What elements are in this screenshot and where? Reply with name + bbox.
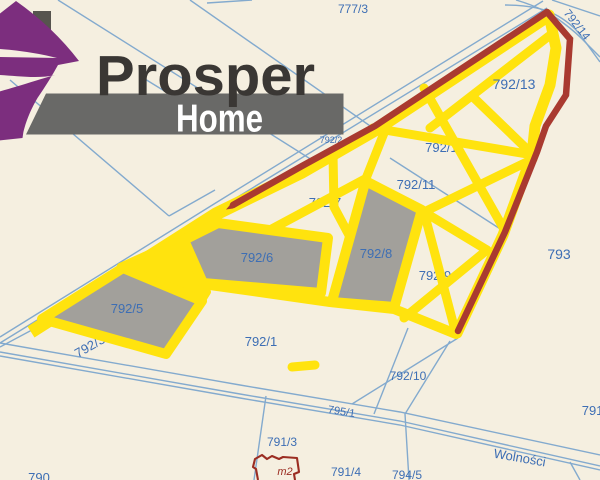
svg-text:793: 793 (547, 246, 571, 262)
svg-text:Home: Home (176, 98, 263, 141)
svg-text:792/8: 792/8 (360, 246, 393, 261)
svg-text:792/1: 792/1 (245, 334, 278, 349)
svg-text:792/11: 792/11 (397, 177, 436, 192)
svg-text:792/13: 792/13 (493, 76, 536, 92)
svg-text:790: 790 (28, 470, 50, 480)
svg-text:792/5: 792/5 (111, 301, 144, 316)
svg-text:m2: m2 (277, 466, 292, 478)
svg-text:791/3: 791/3 (267, 435, 297, 449)
svg-text:792/6: 792/6 (241, 250, 274, 265)
svg-text:794/5: 794/5 (392, 468, 422, 480)
svg-text:791/4: 791/4 (331, 465, 361, 479)
svg-text:792/10: 792/10 (390, 369, 427, 383)
svg-text:791/1: 791/1 (582, 403, 600, 418)
svg-text:777/3: 777/3 (338, 2, 368, 16)
